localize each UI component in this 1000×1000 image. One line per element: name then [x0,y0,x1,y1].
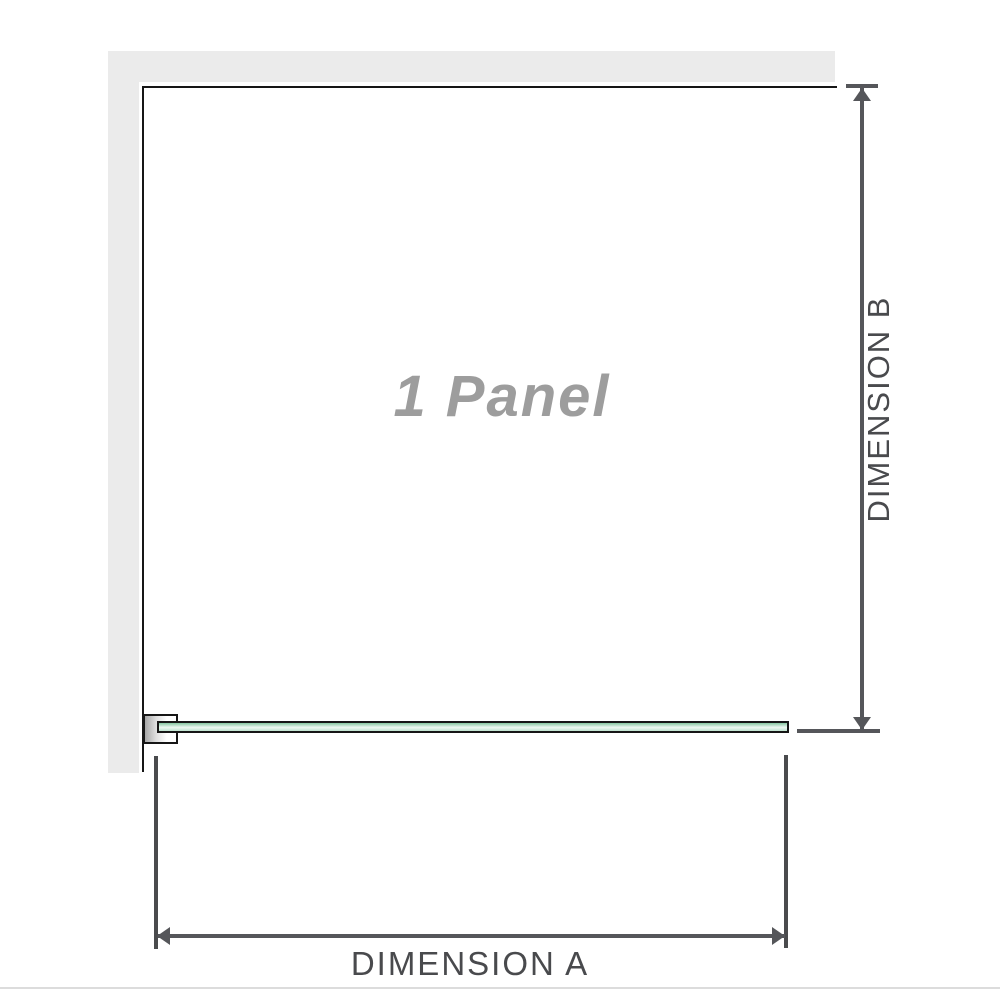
panel-dimension-diagram: 1 Panel DIMENSION B DIMENSION A [0,0,1000,1000]
arrow-down-icon [853,717,871,730]
wall-left-segment [108,51,139,773]
panel-area-outline [142,86,837,772]
arrow-up-icon [853,88,871,101]
dimension-a-line [158,934,785,938]
dimension-b-label: DIMENSION B [864,259,894,559]
glass-panel [157,721,789,733]
bottom-divider-line [0,987,1000,989]
dimension-a-left-extension [154,756,158,949]
dimension-a-right-extension [784,755,788,948]
wall-top-segment [108,51,835,82]
panel-count-label: 1 Panel [342,365,662,429]
arrow-left-icon [157,927,170,945]
dimension-a-label: DIMENSION A [270,946,670,982]
arrow-right-icon [772,927,785,945]
